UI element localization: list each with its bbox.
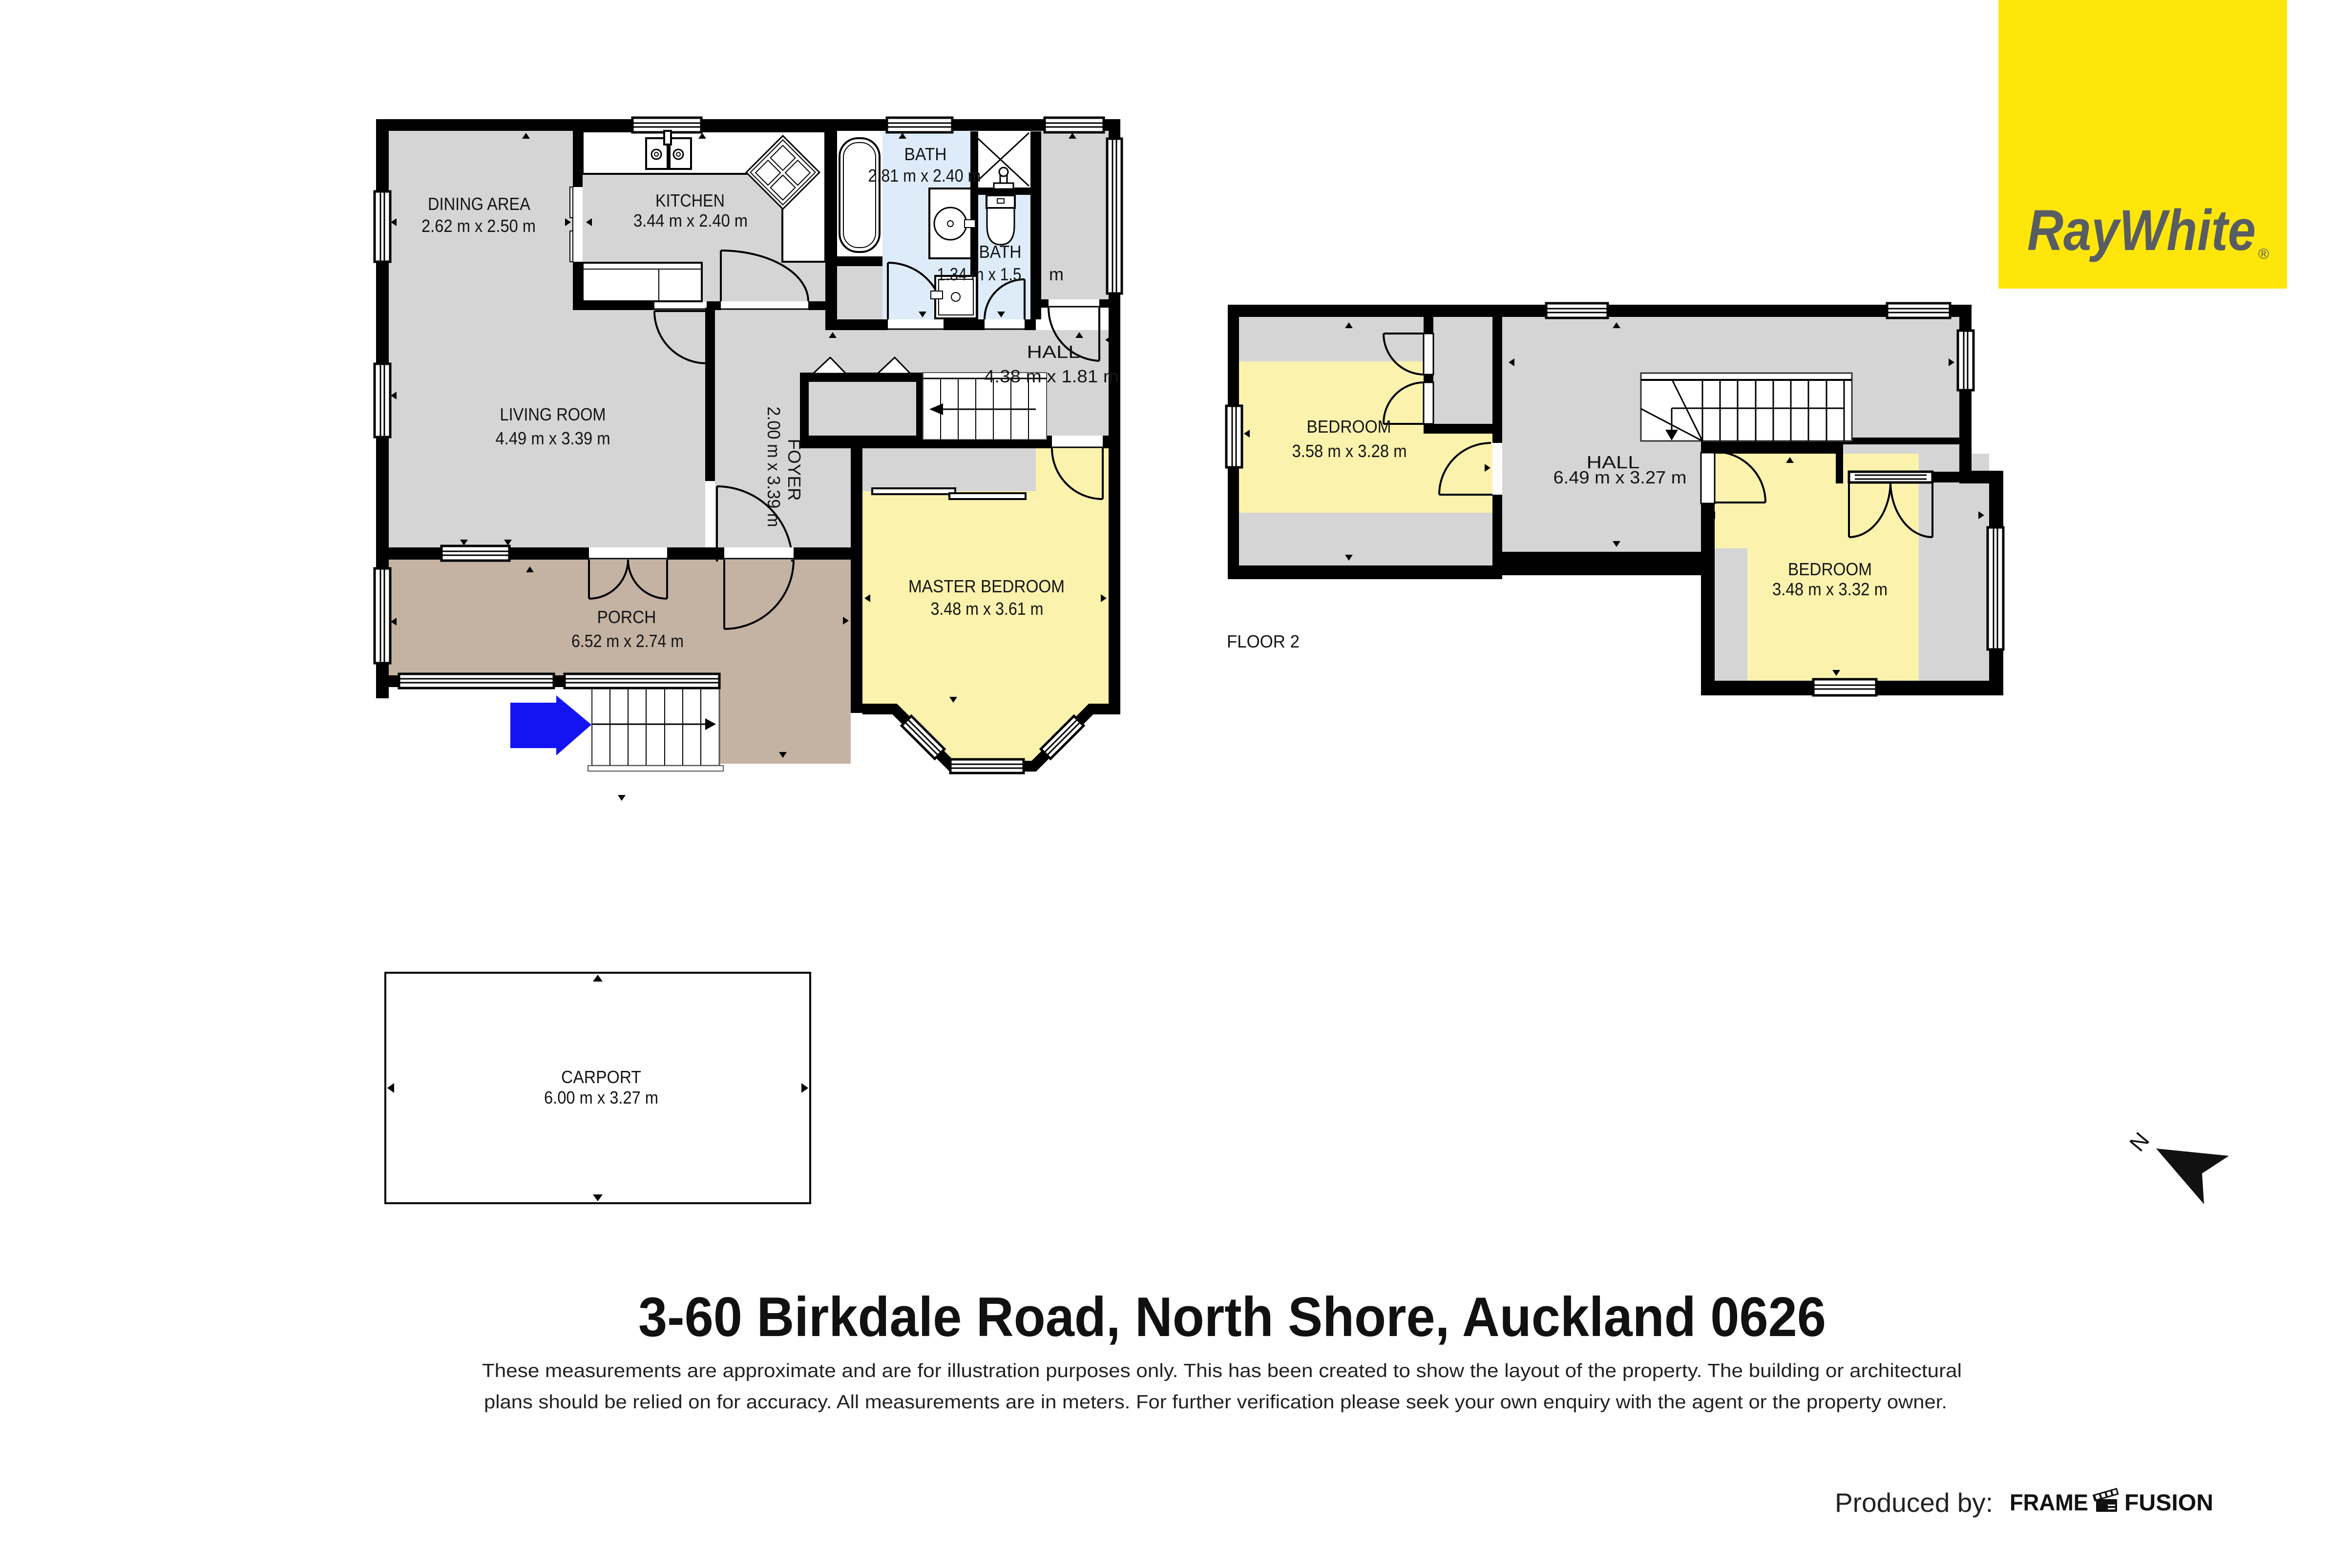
svg-text:KITCHEN: KITCHEN: [655, 190, 725, 210]
svg-text:6.00 m x 3.27 m: 6.00 m x 3.27 m: [544, 1087, 658, 1108]
svg-text:®: ®: [2258, 246, 2269, 262]
svg-text:2.81 m x 2.40 m: 2.81 m x 2.40 m: [868, 166, 981, 186]
svg-text:BATH: BATH: [904, 144, 947, 164]
svg-text:plans should be relied on for: plans should be relied on for accuracy. …: [484, 1392, 1947, 1413]
svg-text:3.48 m x 3.32 m: 3.48 m x 3.32 m: [1772, 579, 1888, 599]
svg-text:These measurements are approxi: These measurements are approximate and a…: [482, 1360, 1962, 1381]
svg-text:FLOOR 2: FLOOR 2: [1227, 631, 1300, 651]
svg-text:RayWhite: RayWhite: [2027, 198, 2256, 263]
svg-text:BATH: BATH: [979, 242, 1022, 262]
svg-text:3-60 Birkdale Road, North Shor: 3-60 Birkdale Road, North Shore, Aucklan…: [638, 1286, 1826, 1348]
svg-text:m: m: [1049, 264, 1064, 284]
svg-text:Produced by:: Produced by:: [1835, 1487, 1993, 1518]
svg-text:2.62 m x 2.50 m: 2.62 m x 2.50 m: [421, 216, 536, 236]
svg-text:HALL: HALL: [1027, 342, 1080, 362]
svg-text:BEDROOM: BEDROOM: [1307, 417, 1391, 437]
svg-text:MASTER BEDROOM: MASTER BEDROOM: [908, 576, 1065, 596]
svg-text:3.58 m x 3.28 m: 3.58 m x 3.28 m: [1292, 441, 1407, 461]
svg-text:4.38 m x 1.81 m: 4.38 m x 1.81 m: [984, 366, 1119, 386]
svg-text:FUSION: FUSION: [2124, 1489, 2213, 1515]
svg-text:1.34 m x 1.5: 1.34 m x 1.5: [937, 264, 1022, 284]
svg-text:LIVING ROOM: LIVING ROOM: [500, 404, 606, 424]
svg-text:BEDROOM: BEDROOM: [1788, 559, 1872, 579]
svg-text:2.00 m x 3.39 m: 2.00 m x 3.39 m: [764, 407, 784, 527]
svg-text:DINING AREA: DINING AREA: [428, 194, 530, 214]
svg-text:FOYER: FOYER: [784, 439, 804, 501]
svg-text:4.49 m x 3.39 m: 4.49 m x 3.39 m: [496, 428, 610, 448]
svg-text:6.49 m x 3.27 m: 6.49 m x 3.27 m: [1553, 467, 1687, 487]
svg-text:3.44 m x 2.40 m: 3.44 m x 2.40 m: [633, 210, 748, 230]
svg-text:CARPORT: CARPORT: [561, 1067, 641, 1087]
svg-text:FRAME: FRAME: [2010, 1489, 2088, 1515]
svg-text:PORCH: PORCH: [597, 607, 656, 627]
svg-text:3.48 m x 3.61 m: 3.48 m x 3.61 m: [931, 599, 1044, 619]
svg-text:6.52 m x 2.74 m: 6.52 m x 2.74 m: [571, 631, 684, 651]
